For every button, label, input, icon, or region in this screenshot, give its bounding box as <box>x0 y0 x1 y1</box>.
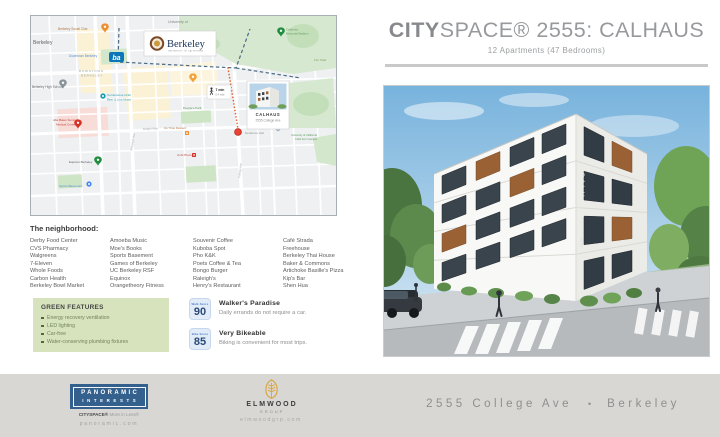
panoramic-logo-line1: PANORAMIC <box>74 390 145 396</box>
header-divider <box>385 64 708 67</box>
panoramic-tagline-rest: More in Less® <box>108 412 139 417</box>
list-item: Kuboba Spot <box>193 246 279 254</box>
list-item: Raleigh's <box>193 276 279 284</box>
list-item: Souvenir Coffee <box>193 238 279 246</box>
map-label-social-club: Berkeley Social Club <box>58 27 88 31</box>
bike-score-badge: Bike Score 85 <box>189 328 211 350</box>
bart-logo-text: ba <box>112 55 120 62</box>
map-label-equinox: Equinox Berkeley <box>69 160 93 164</box>
map-label-city: Berkeley <box>33 40 53 46</box>
bike-score-value: 85 <box>190 337 210 348</box>
map-label-fire-trails: Fire Trails <box>314 58 327 62</box>
page-header: CITYSPACE® 2555: CALHAUS 12 Apartments (… <box>385 18 708 67</box>
panoramic-logo-block: PANORAMIC INTERESTS CITYSPACE® More in L… <box>70 384 148 427</box>
building-rendering: CALHAUS 2555 <box>383 85 710 357</box>
building-sign-text: CALHAUS <box>578 172 585 219</box>
map-label-alta-bates-2: Medical Center <box>56 123 76 127</box>
map-label-downtown-2: BERKELEY <box>81 74 103 78</box>
list-item: Café Strada <box>283 238 343 246</box>
calhaus-map-callout: CALHAUS 2555 College Ave <box>247 81 289 129</box>
list-item: Artichoke Basille's Pizza <box>283 268 343 276</box>
map-label-downtown-1: DOWNTOWN <box>79 69 104 73</box>
list-item: Walgreens <box>30 253 116 261</box>
mobility-scores: Walk Score 90 Walker's Paradise Daily er… <box>189 298 349 358</box>
list-item: Derby Food Center <box>30 238 116 246</box>
list-item: 7-Eleven <box>30 261 116 269</box>
list-item: UC Berkeley RSF <box>110 268 196 276</box>
walk-time-text: 7 min <box>216 88 225 92</box>
map-label-downtown-link[interactable]: Downtown Berkeley <box>69 54 98 58</box>
walk-score-badge: Walk Score 90 <box>189 298 211 320</box>
walk-score-value: 90 <box>190 307 210 318</box>
panoramic-logo: PANORAMIC INTERESTS <box>70 384 148 409</box>
panoramic-logo-line2: INTERESTS <box>74 398 145 403</box>
list-item: CVS Pharmacy <box>30 246 116 254</box>
footer-address-separator: • <box>588 399 591 409</box>
green-feature-item: Water-conserving plumbing fixtures <box>41 338 161 346</box>
map-label-sports-basement: Sports Basement <box>59 184 82 188</box>
list-item: Whole Foods <box>30 268 116 276</box>
list-item: Kip's Bar <box>283 276 343 284</box>
map-label-cos-photo: CoS Photo <box>177 153 192 157</box>
map-label-stadium-2: Memorial Stadium <box>286 32 309 36</box>
list-item: Berkeley Thai House <box>283 253 343 261</box>
map-street-dwight: Dwight Way <box>143 126 159 131</box>
neighborhood-column-1: Derby Food Center CVS Pharmacy Walgreens… <box>30 238 116 291</box>
map-label-clark-kerr-1: University of California <box>291 133 318 137</box>
green-feature-item: Energy recovery ventilation <box>41 314 161 322</box>
list-item: Henry's Restaurant <box>193 283 279 291</box>
list-item: Baker & Commons <box>283 261 343 269</box>
map-label-residence-hall: Residence Hall <box>245 131 264 135</box>
walk-score-row: Walk Score 90 Walker's Paradise Daily er… <box>189 298 349 320</box>
bike-score-title: Very Bikeable <box>219 330 307 337</box>
map-label-university-of: University of <box>168 20 188 24</box>
location-map: Berkeley Berkeley Social Club University… <box>30 15 337 216</box>
page-subtitle: 12 Apartments (47 Bedrooms) <box>385 46 708 55</box>
elmwood-logo-block: ELMWOOD GROUP elmwoodgrp.com <box>232 379 310 423</box>
callout-subtitle: 2555 College Ave <box>256 119 281 123</box>
list-item: Sports Basement <box>110 253 196 261</box>
list-item: Poets Coffee & Tea <box>193 261 279 269</box>
bike-score-row: Bike Score 85 Very Bikeable Biking is co… <box>189 328 349 350</box>
green-features-heading: GREEN FEATURES <box>41 304 161 311</box>
callout-title: CALHAUS <box>256 112 281 117</box>
panoramic-tagline-bold: CITYSPACE® <box>79 412 108 417</box>
list-item: Freehouse <box>283 246 343 254</box>
list-item: Equinox <box>110 276 196 284</box>
list-item: Shen Hua <box>283 283 343 291</box>
bart-station-icon[interactable]: ba <box>109 52 124 62</box>
list-item: Amoeba Music <box>110 238 196 246</box>
destination-dot <box>235 129 242 136</box>
panoramic-tagline: CITYSPACE® More in Less® <box>70 412 148 417</box>
elmwood-url[interactable]: elmwoodgrp.com <box>232 417 310 423</box>
walk-time-badge: 7 min 0.4 mile <box>207 85 231 99</box>
page-title: CITYSPACE® 2555: CALHAUS <box>385 18 708 43</box>
map-label-alta-bates-1: Alta Bates Summit <box>53 118 78 122</box>
green-features-box: GREEN FEATURES Energy recovery ventilati… <box>33 298 169 352</box>
building-rendering-graphic: CALHAUS 2555 <box>384 86 709 356</box>
green-feature-item: LED lighting <box>41 322 161 330</box>
list-item: Carbon Health <box>30 276 116 284</box>
list-item: Pho K&K <box>193 253 279 261</box>
footer-address-city: Berkeley <box>607 398 680 410</box>
page-title-bold: CITY <box>389 18 440 42</box>
neighborhood-column-4: Café Strada Freehouse Berkeley Thai Hous… <box>283 238 343 291</box>
list-item: Games of Berkeley <box>110 261 196 269</box>
map-label-clark-kerr-2: Clark Kerr Campus <box>295 137 318 141</box>
neighborhood-heading: The neighborhood: <box>30 224 98 233</box>
map-graphic: Berkeley Berkeley Social Club University… <box>31 16 336 215</box>
university-wordmark-sub: UNIVERSITY OF CALIFORNIA <box>168 50 203 53</box>
elmwood-sub: GROUP <box>232 409 310 414</box>
neighborhood-column-3: Souvenir Coffee Kuboba Spot Pho K&K Poet… <box>193 238 279 291</box>
walk-score-title: Walker's Paradise <box>219 300 306 307</box>
panoramic-url[interactable]: panoramic.com <box>70 421 148 427</box>
university-logo-box: Berkeley UNIVERSITY OF CALIFORNIA <box>144 31 216 56</box>
footer-address-street: 2555 College Ave <box>426 398 572 410</box>
list-item: Orangetheory Fitness <box>110 283 196 291</box>
map-label-us-time: Us Time Dessert <box>164 126 186 130</box>
walk-distance-text: 0.4 mile <box>216 93 226 97</box>
map-label-high-school: Berkeley High School <box>32 85 63 89</box>
neighborhood-column-2: Amoeba Music Moe's Books Sports Basement… <box>110 238 196 291</box>
green-feature-item: Car-free <box>41 330 161 338</box>
university-wordmark: Berkeley <box>167 39 206 50</box>
footer-address: 2555 College Ave • Berkeley <box>398 398 708 410</box>
map-label-peoples-park: People's Park <box>183 106 202 110</box>
elmwood-name: ELMWOOD <box>232 401 310 408</box>
list-item: Bongo Burger <box>193 268 279 276</box>
bike-score-desc: Biking is convenient for most trips. <box>219 340 307 346</box>
map-label-cornerstone-2: Beer & Live Music <box>107 98 132 102</box>
page-title-rest: SPACE® 2555: CALHAUS <box>440 18 704 42</box>
building-sign-number: 2555 <box>580 238 584 248</box>
walk-score-desc: Daily errands do not require a car. <box>219 310 306 316</box>
list-item: Berkeley Bowl Market <box>30 283 116 291</box>
list-item: Moe's Books <box>110 246 196 254</box>
elmwood-tree-icon <box>264 379 279 399</box>
map-label-cornerstone-1: Cornerstone Craft <box>107 93 131 97</box>
